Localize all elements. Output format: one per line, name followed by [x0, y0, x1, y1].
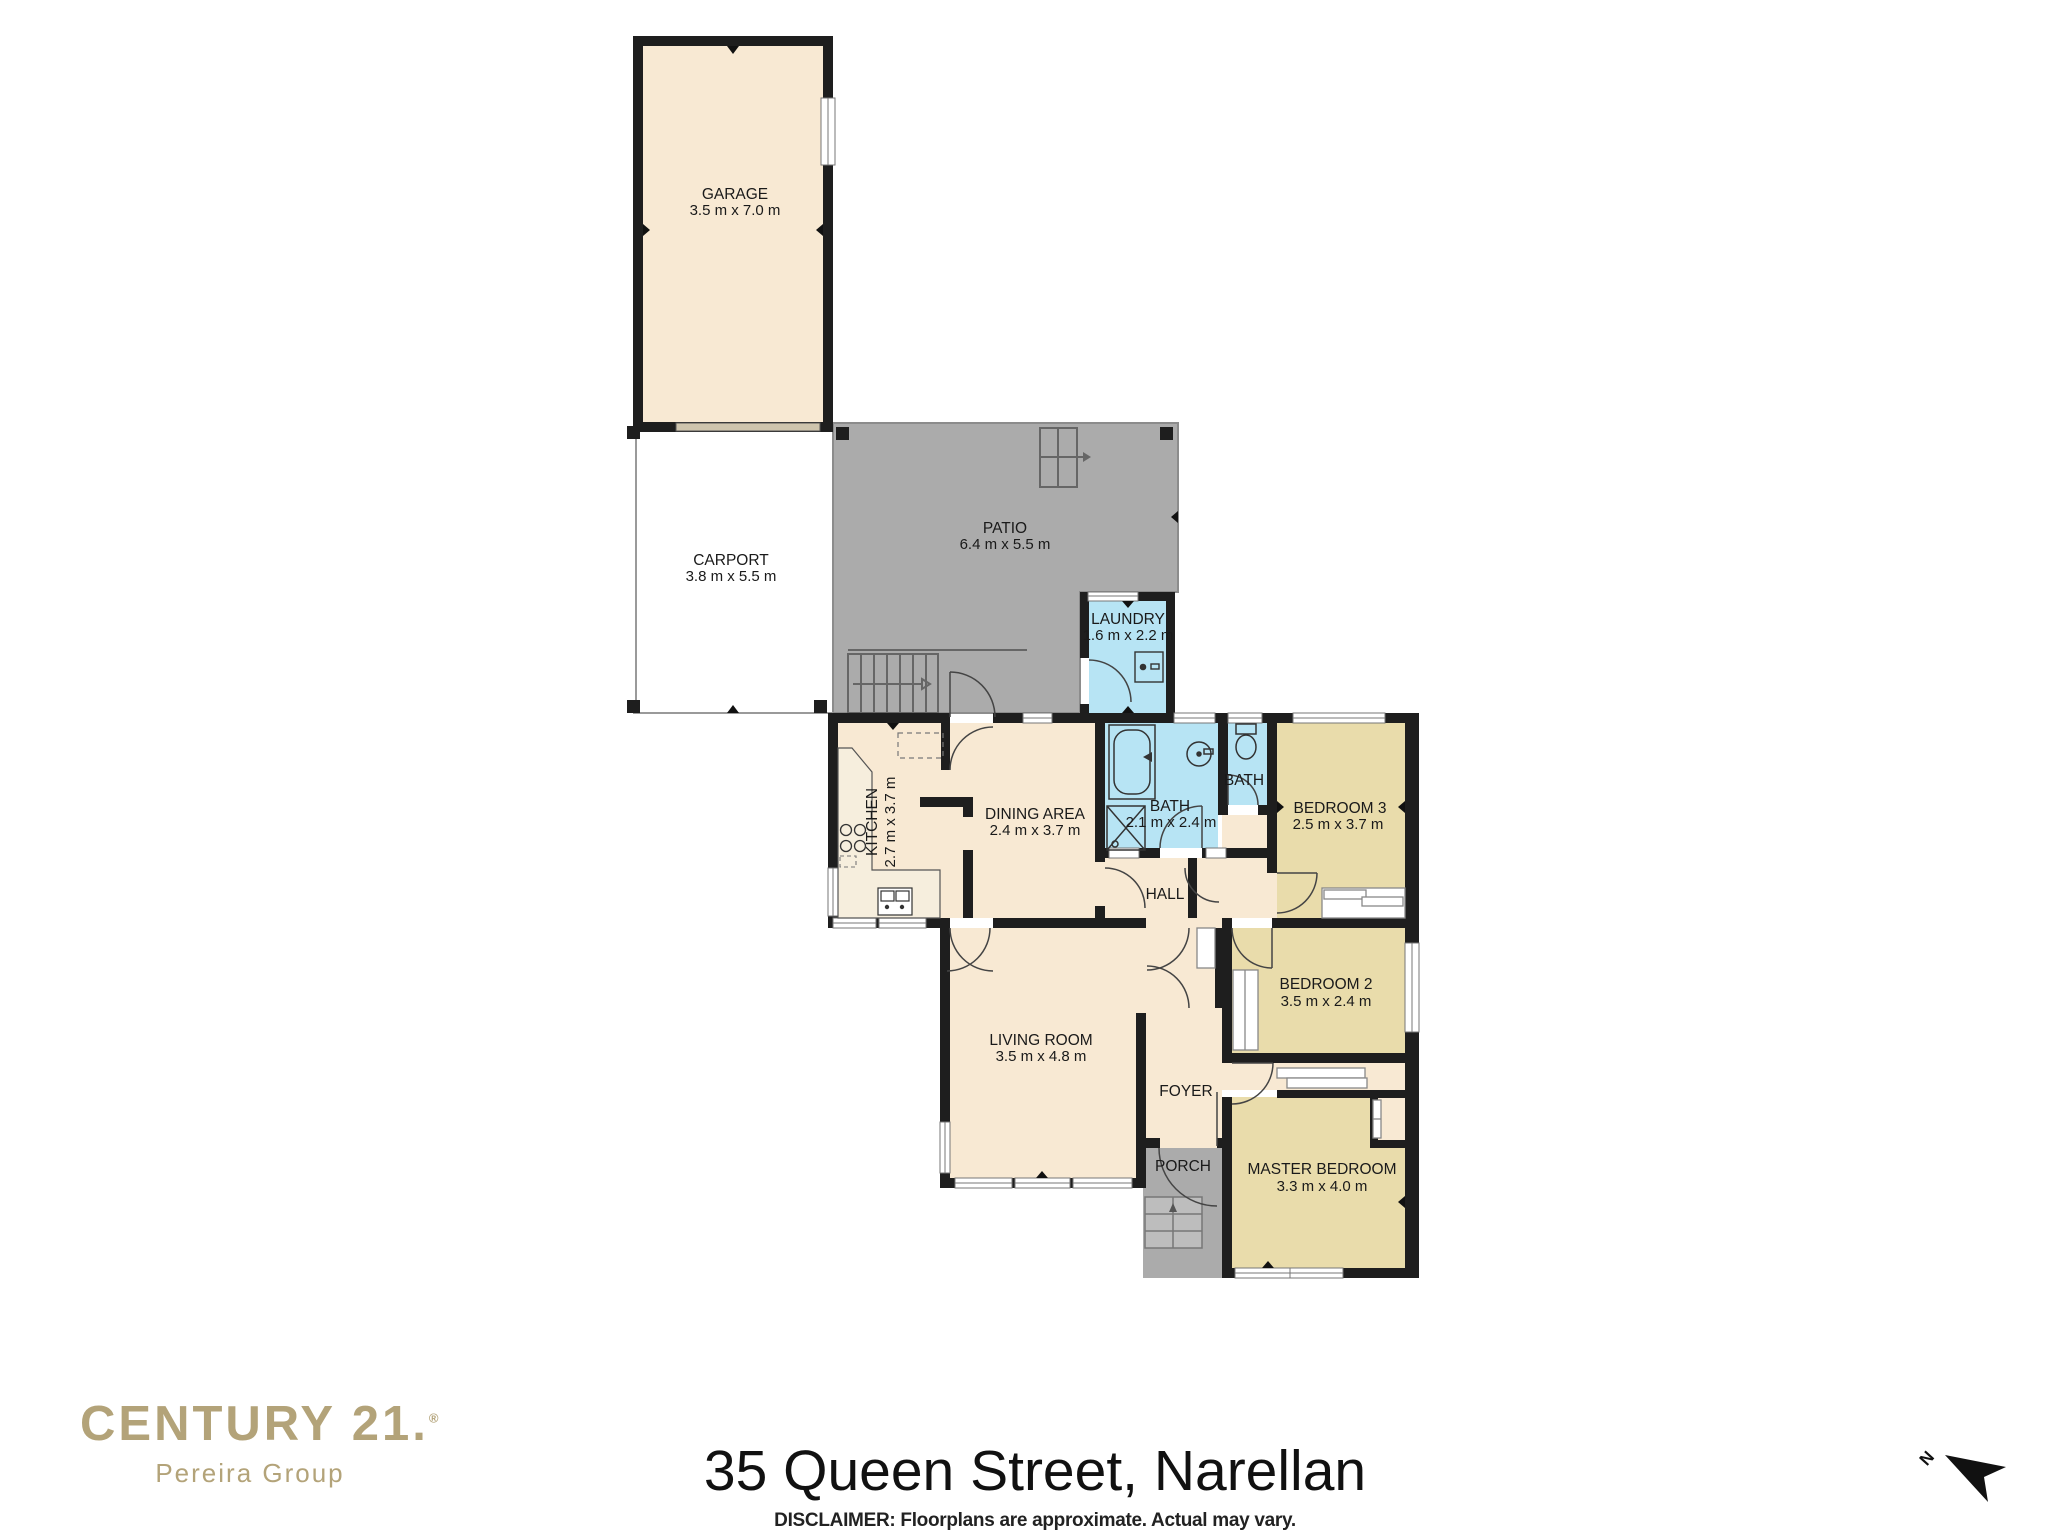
north-arrow-icon: [1945, 1455, 2006, 1502]
carport-label: CARPORT: [693, 552, 769, 569]
laundry-window: [1088, 592, 1138, 601]
bedroom3-label: BEDROOM 3: [1293, 800, 1386, 817]
disclaimer-text: DISCLAIMER: Floorplans are approximate. …: [560, 1510, 1510, 1532]
master-dims: 3.3 m x 4.0 m: [1277, 1178, 1368, 1195]
bedroom3-dims: 2.5 m x 3.7 m: [1293, 816, 1384, 833]
dining-dims: 2.4 m x 3.7 m: [990, 822, 1081, 839]
master-window: [1235, 1268, 1343, 1278]
bath-dims: 2.1 m x 2.4 m: [1126, 814, 1217, 831]
patio-label: PATIO: [983, 520, 1027, 537]
hall-threshold: [1206, 848, 1226, 858]
living-doorway: [1136, 928, 1146, 1013]
dining-label: DINING AREA: [985, 806, 1086, 823]
bedroom3-robe: [1322, 888, 1405, 918]
hall-floor: [1105, 858, 1267, 918]
dining-door-gap: [1095, 862, 1105, 906]
kitchen-dims: 2.7 m x 3.7 m: [882, 777, 899, 868]
kitchen-label: KITCHEN: [864, 788, 881, 856]
north-label: N: [1916, 1447, 1938, 1469]
bath-window: [1174, 713, 1215, 723]
bath-label: BATH: [1150, 798, 1190, 815]
floorplan-page: GARAGE 3.5 m x 7.0 m CARPORT 3.8 m x 5.5…: [0, 0, 2048, 1536]
garage-label: GARAGE: [702, 186, 768, 203]
kitchen-bottom-windows: [833, 918, 926, 928]
kitchen-left-window: [828, 868, 838, 916]
living-dims: 3.5 m x 4.8 m: [996, 1048, 1087, 1065]
bedroom3-door-gap: [1267, 873, 1277, 918]
porch-label: PORCH: [1155, 1158, 1211, 1175]
master-label: MASTER BEDROOM: [1248, 1161, 1397, 1178]
garage-floor: [643, 46, 823, 422]
living-label: LIVING ROOM: [989, 1032, 1092, 1049]
garage-dims: 3.5 m x 7.0 m: [690, 202, 781, 219]
floorplan-drawing: GARAGE 3.5 m x 7.0 m CARPORT 3.8 m x 5.5…: [0, 0, 2048, 1536]
garage-window: [821, 98, 835, 165]
carport-dims: 3.8 m x 5.5 m: [686, 568, 777, 585]
dining-window: [1023, 713, 1052, 723]
bedroom2-label: BEDROOM 2: [1279, 976, 1372, 993]
registered-mark: ®: [429, 1411, 439, 1426]
agency-logo: CENTURY 21.® Pereira Group: [80, 1396, 420, 1489]
master-robe: [1277, 1068, 1367, 1088]
porch-steps-icon: [1145, 1197, 1202, 1248]
hall-foyer-opening: [1146, 918, 1222, 928]
bedroom2-dims: 3.5 m x 2.4 m: [1281, 993, 1372, 1010]
north-compass: N: [1916, 1447, 2006, 1502]
living-bottom-windows: [955, 1178, 1132, 1188]
brand-name: CENTURY 21.®: [80, 1396, 420, 1452]
hall-label: HALL: [1146, 886, 1185, 903]
front-door-gap: [1160, 1138, 1217, 1148]
bath2-window: [1228, 713, 1262, 723]
foyer-cupboard: [1197, 928, 1215, 968]
foyer-label: FOYER: [1159, 1083, 1212, 1100]
laundry-label: LAUNDRY: [1091, 611, 1165, 628]
patio-dims: 6.4 m x 5.5 m: [960, 536, 1051, 553]
bedroom2-robe: [1233, 970, 1258, 1050]
bedroom2-window: [1405, 943, 1419, 1032]
bath2-label: BATH: [1224, 772, 1264, 789]
laundry-dims: 1.6 m x 2.2 m: [1083, 627, 1174, 644]
garage-door: [676, 423, 820, 431]
brand-subname: Pereira Group: [80, 1458, 420, 1489]
master-nook-robe: [1373, 1100, 1381, 1138]
page-title: 35 Queen Street, Narellan: [560, 1438, 1510, 1504]
living-left-window: [940, 1122, 950, 1173]
bedroom3-window: [1293, 713, 1385, 723]
kitchen-sink-icon: [878, 888, 912, 915]
